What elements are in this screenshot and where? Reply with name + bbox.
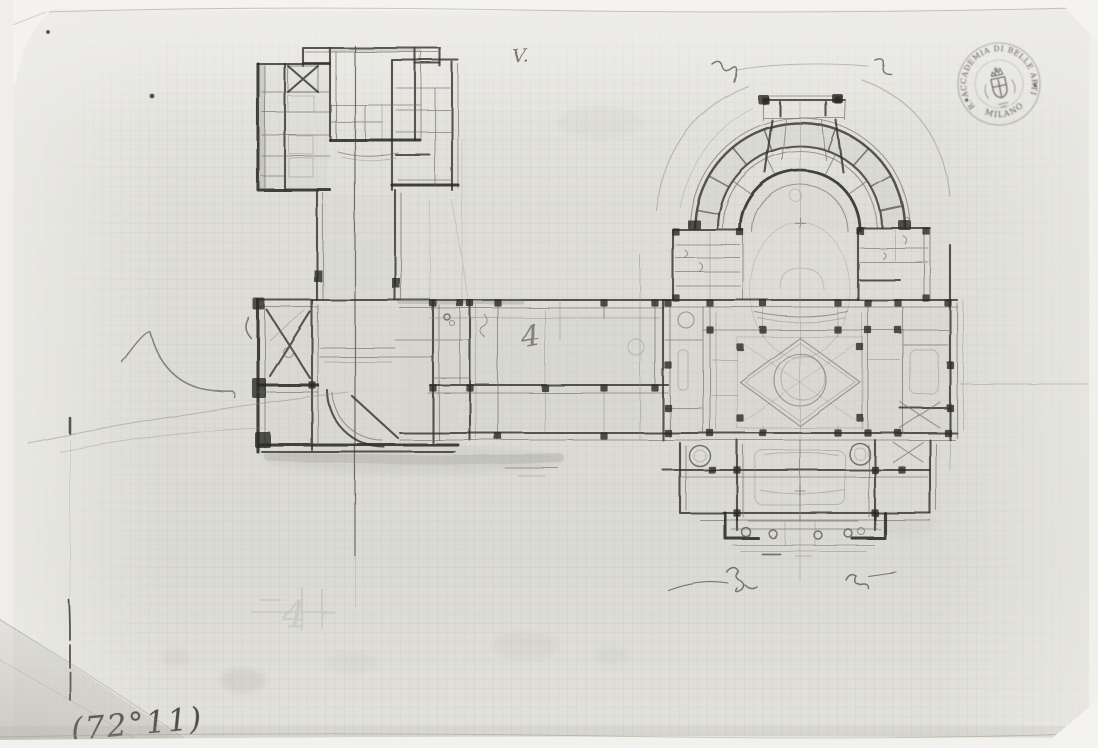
scanned-sheet: 4 V. 4 R. ACCADEMIA DI BELLE ARTI MILANO [0,0,1098,748]
sketch-scan: 4 V. 4 R. ACCADEMIA DI BELLE ARTI MILANO [0,0,1098,748]
v-check-mark: V. [512,45,530,68]
ghost-numeral: 4 [281,593,306,637]
right-edge [1089,0,1098,748]
